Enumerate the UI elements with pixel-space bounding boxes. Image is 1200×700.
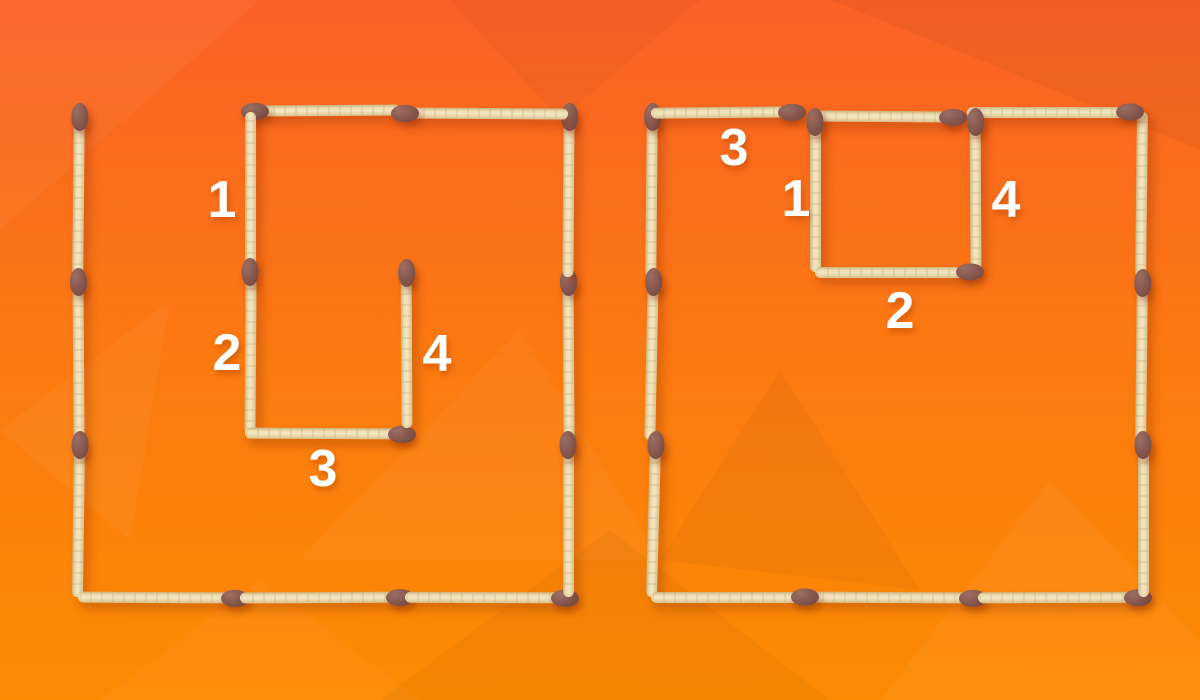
match-head-icon: [778, 103, 806, 120]
match-head-icon: [1135, 431, 1152, 459]
matchstick: [1135, 112, 1148, 278]
matchstick: [967, 107, 1135, 118]
matchstick: [810, 117, 821, 272]
match-number-label: 2: [886, 285, 915, 337]
match-head-icon: [560, 431, 577, 459]
matchstick: [644, 277, 658, 440]
matchstick: [812, 110, 958, 122]
puzzle-canvas: 1234 3142: [0, 0, 1200, 700]
match-head-icon: [966, 108, 983, 136]
matchstick: [815, 267, 975, 278]
matchstick: [978, 591, 1143, 603]
match-head-icon: [939, 108, 967, 125]
match-head-icon: [956, 264, 984, 281]
matchstick: [645, 440, 660, 597]
match-head-icon: [646, 431, 664, 459]
match-number-label: 4: [992, 174, 1021, 226]
match-number-label: 1: [782, 173, 811, 225]
match-head-icon: [242, 258, 259, 286]
matchstick: [1135, 278, 1148, 440]
match-head-icon: [1116, 104, 1144, 121]
matchstick: [645, 112, 657, 277]
right-figure: 3142: [0, 0, 1200, 700]
matchstick: [969, 117, 981, 272]
match-head-icon: [1133, 269, 1150, 297]
matchstick: [651, 592, 810, 603]
matchstick: [810, 591, 978, 603]
match-head-icon: [644, 268, 662, 296]
match-head-icon: [807, 108, 824, 136]
matchstick: [1138, 440, 1149, 597]
match-head-icon: [791, 589, 819, 606]
matchstick: [651, 106, 797, 118]
match-number-label: 3: [720, 122, 749, 174]
